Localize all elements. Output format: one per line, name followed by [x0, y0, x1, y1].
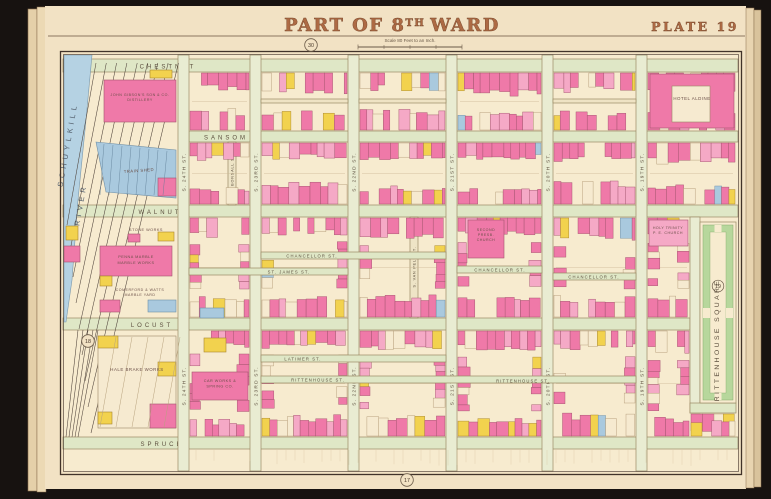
building-lot	[578, 143, 584, 157]
landmark-label: DISTILLERY	[127, 98, 153, 102]
building-lot	[458, 388, 469, 395]
street-label: S. 23RD ST.	[253, 152, 259, 192]
building-lot	[608, 116, 617, 130]
alley-band	[359, 99, 446, 103]
building-lot	[458, 421, 469, 436]
building-lot	[316, 419, 327, 436]
building-lot	[483, 143, 492, 157]
building-lot	[677, 360, 689, 368]
hotel-courtyard	[672, 86, 710, 122]
building-lot	[612, 143, 621, 159]
building-lot	[655, 189, 666, 204]
building-lot	[490, 73, 500, 90]
building-lot	[588, 331, 597, 347]
building-lot	[305, 73, 313, 93]
building-lot	[314, 218, 326, 232]
building-lot	[504, 331, 511, 347]
building-lot	[197, 143, 206, 160]
building-lot	[533, 357, 541, 369]
building-lot	[529, 73, 537, 90]
building-lot	[339, 364, 348, 376]
building-lot	[378, 73, 385, 85]
building-lot	[287, 331, 295, 345]
building-lot	[405, 301, 412, 317]
building-lot	[212, 143, 224, 155]
building-lot	[295, 331, 301, 344]
building-lot	[234, 143, 241, 156]
building-lot	[530, 276, 541, 287]
building-lot	[442, 143, 445, 158]
building-lot	[324, 143, 335, 158]
building-lot	[523, 112, 534, 130]
building-lot	[522, 424, 529, 436]
building-lot	[436, 274, 445, 281]
building-lot	[339, 398, 347, 405]
building-lot	[244, 300, 249, 317]
building-lot	[288, 416, 294, 436]
building-lot	[626, 414, 635, 436]
city-block	[458, 143, 541, 204]
landmark-label: HALE BRAKE WORKS	[110, 367, 163, 372]
building-lot	[286, 73, 294, 89]
building-lot	[323, 113, 334, 130]
building-lot	[657, 143, 668, 164]
building-lot	[316, 331, 328, 343]
building-lot	[338, 185, 347, 204]
building-lot	[236, 116, 245, 130]
building-lot	[344, 301, 347, 317]
building-lot	[631, 143, 635, 158]
building-lot	[277, 421, 287, 437]
building-lot	[307, 331, 315, 344]
building-lot	[334, 115, 344, 130]
building-lot	[572, 420, 580, 436]
building-lot	[685, 331, 689, 353]
building-lot	[477, 143, 483, 159]
building-lot	[511, 143, 520, 159]
building-lot	[554, 331, 561, 344]
building-lot	[514, 300, 520, 318]
building-lot	[576, 112, 587, 130]
building-lot	[618, 187, 625, 204]
building-lot	[335, 300, 344, 317]
street-label: S. 23RD ST.	[253, 366, 259, 406]
building-lot	[516, 218, 524, 233]
building-lot	[262, 391, 274, 400]
building-lot	[344, 73, 347, 94]
building-lot	[729, 190, 735, 205]
building-lot	[487, 331, 496, 349]
building-lot	[383, 110, 389, 130]
landmark-label: CHURCH	[477, 238, 496, 242]
building-lot	[425, 420, 437, 436]
building-lot	[379, 418, 388, 436]
building-lot	[414, 218, 422, 236]
building-lot	[433, 331, 442, 349]
building-lot	[371, 218, 381, 237]
building-lot	[464, 73, 473, 89]
building-lot	[360, 192, 368, 204]
building-lot	[301, 111, 312, 130]
building-lot	[313, 73, 324, 91]
building-lot	[410, 143, 417, 159]
building-lot	[422, 218, 433, 234]
building-lot	[458, 192, 470, 204]
building-lot	[289, 143, 300, 159]
street-band-vertical	[690, 217, 700, 413]
building-lot	[421, 301, 429, 318]
building-lot	[580, 415, 591, 436]
building-lot	[439, 73, 445, 91]
building-lot	[373, 114, 383, 130]
building-lot	[360, 402, 369, 409]
building-lot	[655, 417, 666, 436]
building-lot	[648, 258, 660, 269]
building-lot	[474, 73, 481, 93]
building-lot	[458, 395, 467, 405]
building-lot	[324, 73, 332, 93]
building-lot	[611, 331, 618, 347]
building-lot	[529, 190, 537, 204]
page-edge-right-inner	[746, 8, 754, 488]
building-lot	[617, 113, 626, 130]
building-lot	[226, 188, 238, 204]
small-building	[158, 178, 176, 196]
building-lot	[225, 331, 233, 343]
landmark-label: PENNA MARBLE	[118, 255, 154, 259]
building-lot	[606, 419, 617, 437]
small-building	[148, 300, 176, 312]
building-lot	[700, 143, 711, 162]
building-lot	[402, 73, 412, 91]
building-lot	[240, 282, 249, 290]
building-lot	[360, 387, 370, 396]
building-lot	[237, 73, 246, 90]
building-lot	[605, 302, 615, 317]
building-lot	[554, 295, 560, 317]
building-lot	[412, 298, 421, 317]
street-label: LATIMER ST.	[284, 357, 321, 362]
street-label: S. 19TH ST.	[639, 152, 645, 191]
building-lot	[518, 73, 529, 90]
building-lot	[237, 425, 245, 436]
building-lot	[458, 73, 464, 91]
small-building	[100, 276, 112, 286]
city-block	[554, 218, 635, 317]
plate-number: PLATE 19	[651, 19, 739, 34]
building-lot	[211, 191, 219, 204]
building-lot	[620, 218, 632, 238]
building-lot	[412, 191, 423, 204]
building-lot	[554, 247, 566, 258]
building-lot	[648, 188, 655, 204]
building-lot	[273, 143, 280, 159]
atlas-map-plate: PART OF 8THWARD PLATE 19 Scale 80 Feet t…	[0, 0, 771, 499]
park-path-gap	[726, 308, 733, 318]
building-lot	[583, 181, 594, 204]
building-lot	[504, 143, 511, 158]
building-lot	[683, 421, 689, 436]
building-lot	[520, 331, 528, 350]
building-lot	[666, 187, 675, 205]
building-lot	[503, 190, 514, 204]
building-lot	[341, 420, 348, 436]
building-lot	[458, 357, 467, 367]
building-lot	[399, 143, 410, 157]
building-lot	[326, 218, 334, 230]
building-lot	[442, 188, 445, 204]
building-lot	[676, 300, 688, 318]
building-lot	[705, 190, 715, 204]
street-band-vertical	[178, 55, 189, 471]
building-lot	[458, 115, 465, 130]
building-lot	[433, 398, 445, 407]
building-lot	[521, 300, 530, 317]
building-lot	[429, 73, 438, 90]
building-lot	[458, 218, 465, 231]
building-lot	[337, 387, 347, 398]
building-lot	[403, 191, 411, 204]
building-lot	[532, 405, 541, 411]
city-block	[648, 143, 735, 204]
building-lot	[515, 419, 522, 437]
building-lot	[597, 331, 605, 346]
building-lot	[469, 422, 478, 436]
building-lot	[388, 420, 396, 436]
building-lot	[300, 143, 311, 154]
building-lot	[480, 112, 490, 130]
building-lot	[360, 143, 368, 160]
building-lot	[467, 300, 475, 317]
building-lot	[684, 188, 696, 204]
building-lot	[537, 73, 541, 94]
building-lot	[262, 278, 273, 288]
building-lot	[436, 416, 445, 436]
building-lot	[507, 218, 516, 231]
building-lot	[533, 112, 541, 130]
building-lot	[580, 331, 588, 345]
building-lot	[234, 331, 245, 345]
street-label: RITTENHOUSE ST.	[496, 379, 550, 384]
building-lot	[681, 377, 689, 385]
building-lot	[562, 143, 570, 158]
building-lot	[207, 218, 218, 237]
building-lot	[224, 143, 234, 159]
building-lot	[378, 331, 385, 350]
alley-band	[261, 99, 348, 103]
building-lot	[677, 251, 689, 262]
building-lot	[679, 143, 691, 160]
building-lot	[563, 413, 572, 436]
building-lot	[670, 296, 676, 317]
building-lot	[509, 114, 516, 130]
building-lot	[560, 301, 570, 317]
building-lot	[690, 143, 700, 160]
building-lot	[391, 186, 398, 204]
landmark-label: MARBLE YARD	[125, 293, 156, 297]
street-label: S. 22ND ST.	[351, 152, 357, 192]
building-lot	[625, 357, 635, 368]
landmark-label: HOLY TRINITY	[653, 226, 683, 230]
building-lot	[262, 143, 273, 156]
building-lot	[624, 393, 635, 403]
building-lot	[496, 192, 504, 204]
building-lot	[526, 143, 536, 159]
landmark-label: PRESB.	[478, 233, 494, 237]
building-lot	[336, 331, 346, 345]
building-lot	[434, 190, 442, 204]
building-lot	[270, 218, 279, 233]
building-lot	[406, 218, 414, 238]
building-lot	[237, 301, 245, 317]
building-lot	[435, 389, 445, 398]
small-building	[66, 226, 78, 240]
title-suffix: WARD	[429, 15, 500, 36]
building-lot	[190, 255, 198, 263]
building-lot	[561, 183, 572, 204]
building-lot	[437, 263, 446, 275]
building-lot	[505, 297, 514, 317]
building-lot	[648, 252, 659, 258]
building-lot	[393, 331, 405, 348]
building-lot	[538, 189, 541, 204]
building-lot	[310, 182, 321, 204]
building-lot	[648, 143, 657, 158]
landmark-label: MARBLE WORKS	[117, 261, 154, 265]
building-lot	[262, 115, 274, 130]
building-lot	[554, 182, 561, 205]
building-lot	[658, 300, 670, 317]
building-lot	[522, 189, 530, 204]
street-label: S. 20TH ST.	[545, 152, 551, 191]
building-lot	[238, 190, 245, 204]
building-lot	[415, 416, 425, 436]
building-lot	[490, 422, 497, 436]
building-lot	[200, 190, 211, 204]
building-lot	[412, 73, 421, 87]
building-lot	[564, 73, 570, 93]
building-lot	[379, 189, 391, 204]
building-lot	[722, 187, 729, 204]
building-lot	[578, 218, 590, 234]
building-lot	[529, 423, 537, 436]
building-lot	[278, 187, 289, 204]
landmark-label: STONE WORKS	[129, 228, 163, 232]
building-lot	[360, 269, 370, 279]
building-lot	[621, 143, 632, 158]
street-band-vertical	[348, 55, 359, 471]
building-lot	[286, 302, 297, 317]
street-label: CHANCELLOR ST.	[474, 268, 525, 273]
building-lot	[213, 425, 219, 436]
building-lot	[262, 400, 274, 409]
building-lot	[480, 73, 490, 93]
building-lot	[380, 143, 391, 160]
building-lot	[306, 299, 317, 317]
building-lot	[591, 415, 599, 436]
building-lot	[458, 143, 466, 157]
building-lot	[605, 143, 612, 157]
building-lot	[360, 297, 367, 317]
small-building	[64, 246, 80, 262]
building-lot	[360, 218, 371, 237]
building-lot	[570, 73, 578, 88]
street-label: RITTENHOUSE ST.	[291, 378, 345, 383]
building-lot	[407, 416, 415, 436]
city-block	[691, 414, 735, 436]
street-label: S. 24TH ST.	[181, 152, 187, 191]
building-lot	[519, 143, 525, 157]
building-lot	[190, 245, 200, 255]
building-lot	[421, 73, 430, 88]
park-name-label: RITTENHOUSE SQUARE	[714, 279, 721, 402]
building-lot	[561, 331, 571, 348]
building-lot	[497, 422, 509, 436]
building-lot	[410, 114, 416, 130]
building-lot	[245, 191, 250, 204]
building-lot	[280, 143, 290, 158]
street-label: S. 21ST ST.	[449, 153, 455, 192]
building-lot	[711, 143, 721, 158]
building-lot	[596, 73, 604, 86]
building-lot	[626, 258, 636, 270]
building-lot	[424, 143, 432, 155]
building-lot	[279, 299, 286, 317]
building-lot	[598, 416, 605, 437]
street-label: S. 21ST ST.	[449, 367, 455, 406]
building-lot	[390, 143, 398, 159]
building-lot	[237, 400, 249, 411]
building-lot	[470, 189, 478, 204]
building-lot	[423, 190, 435, 204]
scale-note: Scale 80 Feet to an Inch.	[384, 38, 435, 43]
building-lot	[604, 73, 614, 89]
street-label: SPRUCE	[140, 442, 183, 448]
building-lot	[721, 143, 728, 158]
building-lot	[415, 331, 426, 347]
building-lot	[674, 423, 684, 437]
building-lot	[245, 331, 249, 347]
street-band-vertical	[446, 55, 457, 471]
street-label: CHANCELLOR ST.	[286, 254, 337, 259]
building-lot	[535, 218, 541, 233]
building-lot	[587, 115, 596, 130]
street-label: LOCUST	[131, 323, 173, 329]
building-lot	[289, 182, 299, 204]
landmark-label: CAR WORKS &	[204, 379, 237, 383]
building-lot	[648, 299, 658, 317]
building-lot	[648, 360, 660, 371]
street-label: S. 24TH ST.	[181, 366, 187, 405]
building-lot	[458, 405, 469, 411]
building-lot	[190, 111, 202, 130]
map-body: CHESTNUTSANSOMWALNUTLOCUSTSPRUCES. 24TH …	[56, 55, 738, 472]
park-path-gap	[703, 308, 710, 318]
building-lot	[668, 143, 679, 162]
building-lot	[417, 143, 423, 159]
building-lot	[328, 183, 338, 204]
building-lot	[599, 218, 605, 236]
building-lot	[554, 218, 561, 235]
building-lot	[190, 302, 199, 317]
building-lot	[431, 143, 442, 158]
building-lot	[262, 418, 270, 436]
building-lot	[262, 300, 270, 317]
building-lot	[416, 113, 427, 130]
building-lot	[499, 113, 509, 130]
building-lot	[301, 331, 308, 345]
building-lot	[536, 143, 541, 155]
